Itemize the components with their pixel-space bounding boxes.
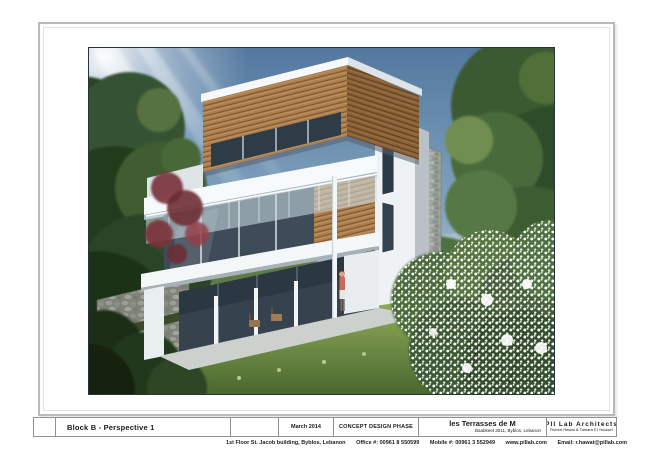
architect-cell: PII Lab Architects Robert Hawat & Tamara… — [547, 418, 616, 436]
perspective-render — [88, 47, 555, 395]
date-cell: March 2014 — [279, 418, 334, 436]
revision-cell — [34, 418, 56, 436]
title-block: Block B - Perspective 1 March 2014 CONCE… — [33, 417, 617, 437]
spare-cell — [231, 418, 279, 436]
contact-line: 1st Floor St. Jacob building, Byblos, Le… — [33, 440, 627, 446]
project-cell: les Terrasses de M Baabkeet 3011, Byblos… — [419, 418, 547, 436]
architect-principals: Robert Hawat & Tamara El Youssef — [550, 428, 612, 432]
phase-cell: CONCEPT DESIGN PHASE — [334, 418, 419, 436]
email-address: Email: r.hawat@pillab.com — [557, 440, 627, 446]
mobile-phone: Mobile #: 00961 3 552949 — [430, 440, 495, 446]
drawing-title: Block B - Perspective 1 — [56, 418, 231, 436]
office-address: 1st Floor St. Jacob building, Byblos, Le… — [226, 440, 345, 446]
project-location: Baabkeet 3011, Byblos, Lebanon — [475, 429, 546, 434]
website-link: www.pillab.com — [506, 440, 547, 446]
office-phone: Office #: 00961 8 550599 — [356, 440, 419, 446]
